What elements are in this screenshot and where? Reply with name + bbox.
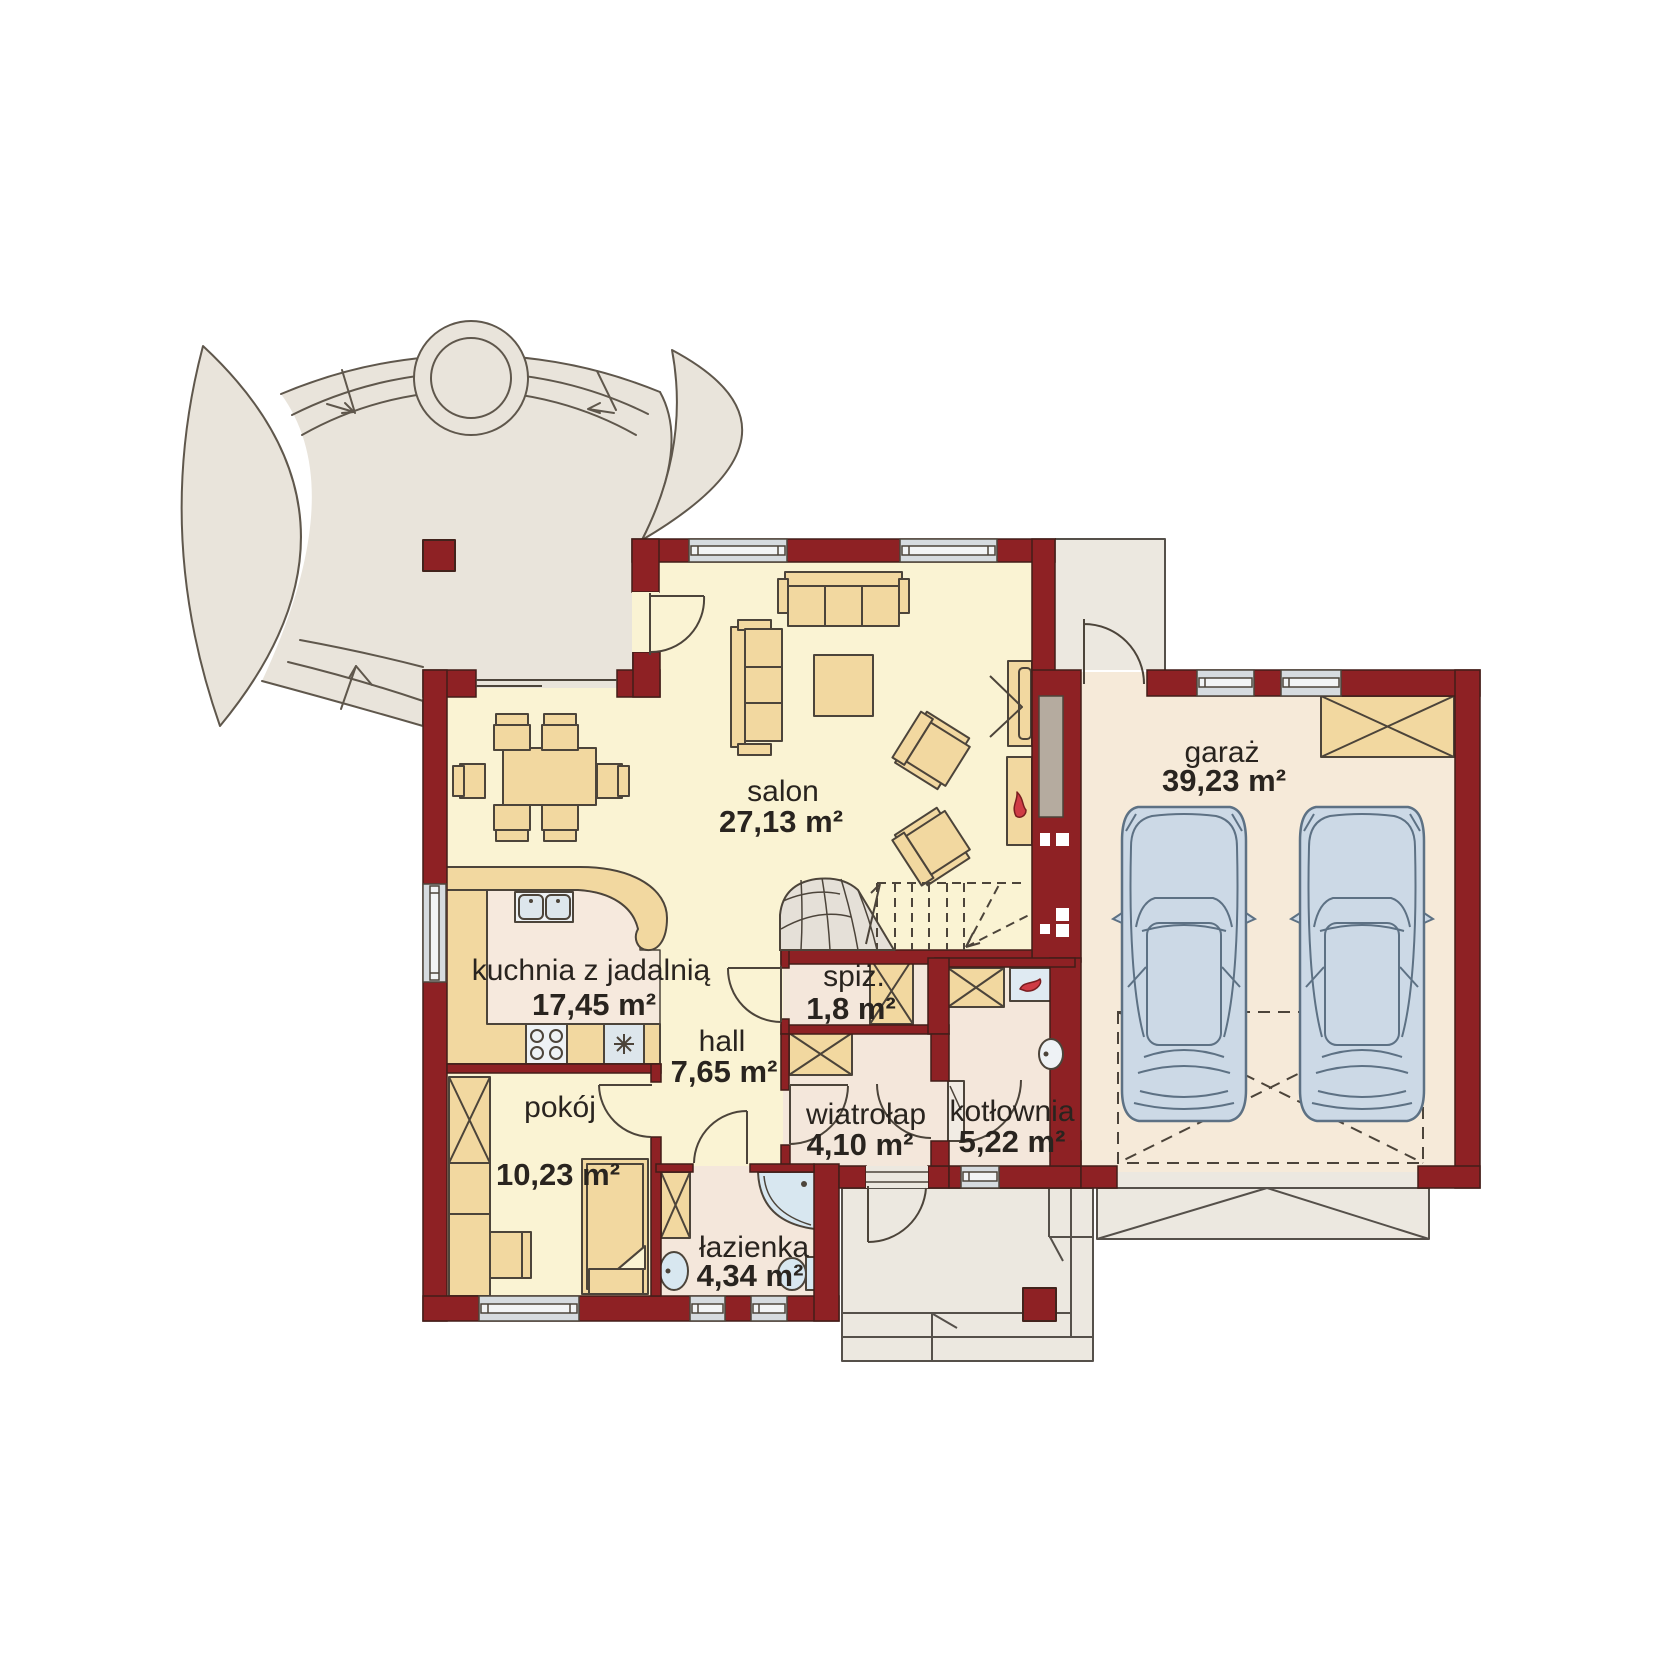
svg-text:39,23 m²: 39,23 m² xyxy=(1162,763,1286,798)
svg-text:27,13 m²: 27,13 m² xyxy=(719,804,843,839)
svg-text:1,8 m²: 1,8 m² xyxy=(806,991,896,1026)
svg-text:10,23 m²: 10,23 m² xyxy=(496,1157,620,1192)
svg-text:spiż.: spiż. xyxy=(823,960,885,993)
svg-text:17,45 m²: 17,45 m² xyxy=(532,987,656,1022)
svg-text:7,65 m²: 7,65 m² xyxy=(671,1054,778,1089)
svg-text:4,10 m²: 4,10 m² xyxy=(807,1127,914,1162)
svg-text:4,34 m²: 4,34 m² xyxy=(697,1258,804,1293)
svg-text:pokój: pokój xyxy=(524,1091,596,1124)
svg-text:kuchnia z jadalnią: kuchnia z jadalnią xyxy=(472,954,711,987)
svg-text:5,22 m²: 5,22 m² xyxy=(959,1124,1066,1159)
